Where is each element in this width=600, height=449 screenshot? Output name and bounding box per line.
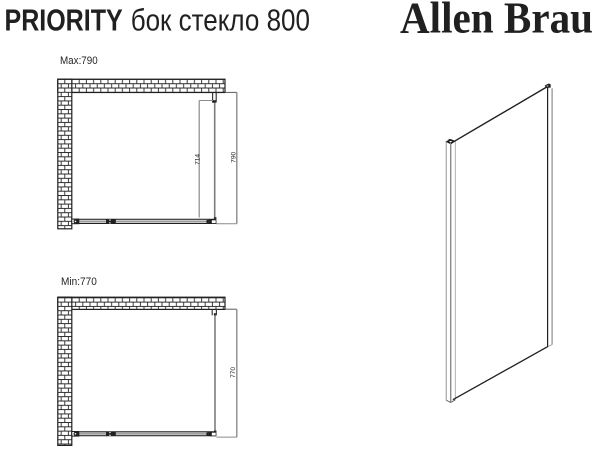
svg-text:714: 714 <box>194 154 201 165</box>
svg-text:770: 770 <box>230 367 237 378</box>
svg-text:бок стекло 800: бок стекло 800 <box>131 4 310 38</box>
svg-text:Max:790: Max:790 <box>60 55 98 67</box>
svg-text:Min:770: Min:770 <box>61 276 97 288</box>
svg-text:790: 790 <box>231 151 238 162</box>
svg-text:Allen Brau: Allen Brau <box>400 0 593 43</box>
svg-text:PRIORITY: PRIORITY <box>5 4 123 38</box>
